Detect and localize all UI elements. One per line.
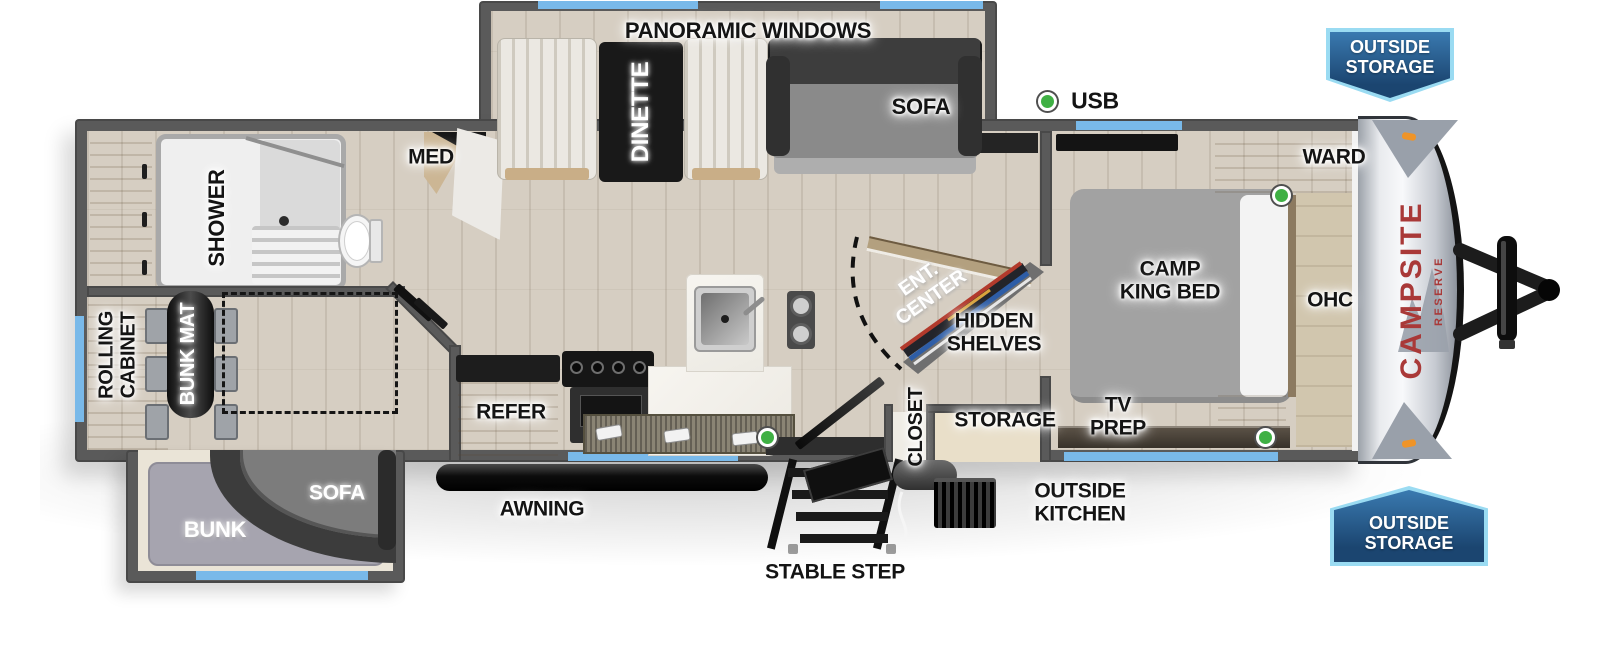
usb-dot-nightstand <box>1256 428 1275 447</box>
drawer-1 <box>145 308 169 344</box>
label-awning: AWNING <box>500 499 585 522</box>
outside-kitchen-griddle <box>934 478 996 528</box>
window-slide-top-right <box>880 1 983 9</box>
label-bunk-mat: BUNK MAT <box>178 303 200 406</box>
label-camp-king-bed: CAMP KING BED <box>1120 258 1220 303</box>
sofa-main-arm-right <box>958 56 982 156</box>
bath-cabinet-handle-2 <box>142 212 147 227</box>
sofa-bunk-arm <box>378 450 396 550</box>
cabinet-handle-3 <box>731 431 758 447</box>
label-sofa-bunk: SOFA <box>309 483 365 506</box>
tv-bedroom <box>1056 134 1178 151</box>
usb-legend-label: USB <box>1071 89 1119 114</box>
outside-storage-badge-top: OUTSIDE STORAGE <box>1326 28 1454 102</box>
label-refer: REFER <box>476 402 546 425</box>
outside-storage-badge-bottom-label: OUTSIDE STORAGE <box>1330 514 1488 554</box>
label-tv-prep: TV PREP <box>1090 394 1146 439</box>
label-ohc: OHC <box>1307 290 1353 313</box>
window-slide-top-left <box>538 1 698 9</box>
burner-3 <box>612 361 625 374</box>
step-foot-right <box>886 544 896 554</box>
usb-dot-bed-top <box>1272 186 1291 205</box>
brand-campsite: CAMPSITE <box>1396 200 1428 379</box>
drawer-3 <box>145 404 169 440</box>
label-bunk: BUNK <box>184 518 246 542</box>
tray-circle-1 <box>790 295 812 317</box>
label-hidden-shelves: HIDDEN SHELVES <box>947 310 1041 355</box>
sink-drain <box>721 315 729 323</box>
dinette-bench-right <box>684 38 768 180</box>
usb-dot-kitchen <box>758 428 777 447</box>
label-outside-kitchen: OUTSIDE KITCHEN <box>1034 480 1125 525</box>
window-slide-bunk <box>196 571 368 580</box>
burner-2 <box>591 361 604 374</box>
window-rear-left <box>75 316 84 422</box>
step-bar-4 <box>800 534 888 543</box>
wall-bedroom <box>1040 131 1052 266</box>
floorplan-canvas: CAMPSITE RESERVE OUTSIDE STORAGE OUTSIDE… <box>0 0 1600 656</box>
window-bottom-bedroom <box>1064 452 1278 461</box>
burner-4 <box>633 361 646 374</box>
label-dinette: DINETTE <box>628 62 654 163</box>
bed-pillows <box>1240 195 1288 397</box>
label-storage: STORAGE <box>954 410 1055 433</box>
dinette-bench-left-base <box>505 168 589 180</box>
dinette-bench-left <box>497 38 597 180</box>
label-med: MED <box>408 147 454 170</box>
shower-drain <box>279 216 289 226</box>
usb-legend-dot <box>1038 92 1057 111</box>
dinette-bench-right-base <box>692 168 760 180</box>
refrigerator-top <box>456 355 560 382</box>
label-closet: CLOSET <box>906 387 928 466</box>
sofa-main-arm-left <box>766 56 790 156</box>
bath-cabinet-handle-1 <box>142 164 147 179</box>
shower-slats <box>252 226 340 284</box>
toilet-seat <box>344 221 370 261</box>
brand-reserve: RESERVE <box>1434 256 1446 326</box>
label-stable-step: STABLE STEP <box>765 562 905 585</box>
ohc-cabinet <box>1296 193 1354 447</box>
step-bar-3 <box>796 512 888 521</box>
bunk-above-outline <box>222 292 398 414</box>
sofa-main-back <box>768 38 982 84</box>
step-foot-left <box>788 544 798 554</box>
awning-roll <box>436 464 768 491</box>
label-sofa-main: SOFA <box>892 95 951 119</box>
burner-1 <box>570 361 583 374</box>
outside-storage-badge-top-label: OUTSIDE STORAGE <box>1326 38 1454 78</box>
label-rolling-cabinet: ROLLING CABINET <box>96 311 139 399</box>
label-ward: WARD <box>1303 147 1366 170</box>
window-top-bedroom <box>1076 121 1182 130</box>
label-shower: SHOWER <box>205 169 229 266</box>
label-panoramic-windows: PANORAMIC WINDOWS <box>625 19 871 43</box>
tray-circle-2 <box>790 323 812 345</box>
toilet-tank <box>369 219 383 263</box>
bath-cabinet-handle-3 <box>142 260 147 275</box>
drawer-2 <box>145 356 169 392</box>
